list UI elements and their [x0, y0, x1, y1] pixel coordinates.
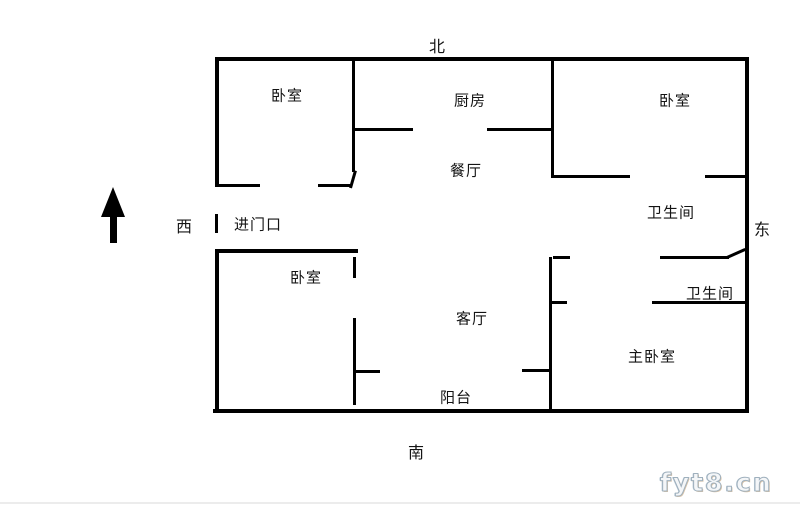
wall-living-east: [549, 257, 552, 412]
living-room-label: 客厅: [456, 308, 488, 329]
bedroom-top-left-label: 卧室: [271, 85, 303, 106]
wall-kitchen-east: [551, 57, 554, 178]
master-bedroom-label: 主卧室: [628, 346, 676, 367]
compass-north-label: 北: [429, 33, 445, 57]
balcony-opening-tick-right: [522, 369, 551, 372]
wall-outer-bottom: [213, 409, 749, 413]
wall-outer-top: [215, 57, 749, 61]
footer-divider-line: [0, 502, 800, 504]
compass-west-label: 西: [176, 213, 192, 237]
bedroom-bottom-left-label: 卧室: [290, 267, 322, 288]
watermark-text: fyt8.cn: [660, 468, 773, 497]
wall-kitchen-south-left: [354, 128, 413, 131]
wall-bedroom2-east-jamb: [353, 257, 356, 278]
wall-outer-west-upper: [215, 57, 219, 187]
wall-outer-east: [745, 57, 749, 413]
bathroom-upper-door-leaf: [726, 248, 745, 259]
bedroom-top-right-label: 卧室: [659, 90, 691, 111]
floor-plan: 北 南 西 东 进门口 卧室 厨房 卧室 餐厅 卫生间 卧室 卫生间 客厅 主卧…: [0, 0, 800, 510]
wall-bathroom-upper-south: [660, 256, 729, 259]
wall-kitchen-south-right: [487, 128, 553, 131]
kitchen-label: 厨房: [454, 90, 486, 111]
north-arrow-shaft: [110, 212, 117, 243]
balcony-label: 阳台: [440, 387, 472, 408]
wall-bedroom1-south-left: [215, 184, 260, 187]
wall-bedroom-tr-south-right: [705, 175, 749, 178]
entrance-label: 进门口: [234, 214, 282, 235]
wall-bedroom2-north: [215, 249, 358, 253]
wall-bedroom2-east: [353, 318, 356, 405]
compass-east-label: 东: [754, 216, 770, 240]
compass-south-label: 南: [408, 439, 424, 463]
wall-outer-west-lower: [215, 249, 219, 413]
balcony-opening-tick-left: [354, 370, 380, 373]
wall-bedroom1-south-right: [318, 184, 351, 187]
bathroom-lower-label: 卫生间: [686, 283, 734, 304]
wall-bedroom1-east: [352, 57, 355, 172]
dining-room-label: 餐厅: [450, 160, 482, 181]
wall-bathroom-upper-south-tick: [553, 256, 570, 259]
entrance-door-tick: [215, 214, 218, 233]
bathroom-upper-label: 卫生间: [647, 202, 695, 223]
wall-bedroom-tr-south-left: [553, 175, 630, 178]
